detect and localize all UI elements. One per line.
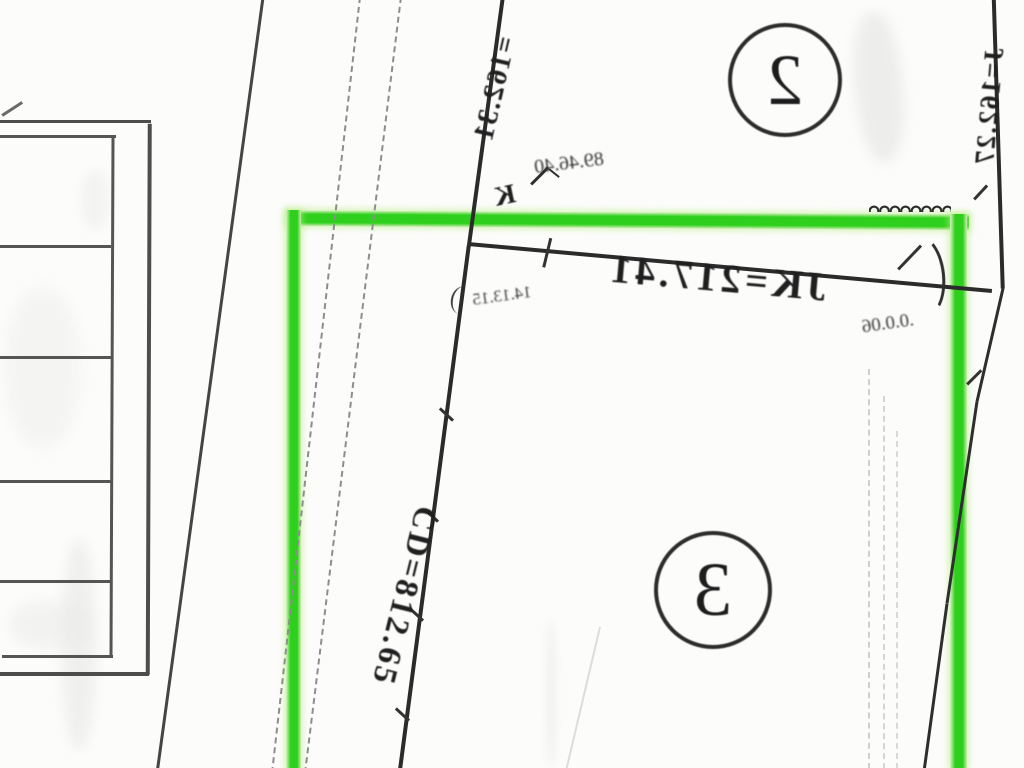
highlight-rect-left-edge bbox=[286, 210, 301, 768]
building-outline bbox=[146, 124, 151, 675]
scalloped-boundary-mark bbox=[869, 201, 951, 212]
building-partition bbox=[0, 480, 111, 483]
parcel-3-number: 3 bbox=[694, 547, 732, 634]
building-outline bbox=[0, 120, 151, 123]
faded-smudge bbox=[80, 170, 110, 230]
parcel-2-marker: 2 bbox=[728, 23, 842, 137]
building-partition bbox=[0, 580, 111, 583]
building-partition bbox=[0, 245, 111, 248]
faded-smudge bbox=[6, 288, 80, 448]
dimension-label-162: =162.31 bbox=[463, 8, 529, 171]
faded-smudge bbox=[546, 620, 556, 768]
plat-map: JK=217.41 =162.31 J=162.27 CD=812.65 89.… bbox=[0, 0, 1024, 768]
building-outline bbox=[0, 672, 149, 676]
highlight-rect-top-edge bbox=[286, 210, 969, 230]
dimension-label-jk: JK=217.41 bbox=[566, 243, 869, 313]
dimension-label-j: J=162.27 bbox=[969, 31, 1012, 183]
building-outline bbox=[0, 135, 116, 138]
faded-line bbox=[896, 431, 898, 768]
dimension-label-cd: CD=812.65 bbox=[354, 461, 455, 732]
faded-line bbox=[883, 396, 885, 768]
point-label-k: K bbox=[485, 178, 524, 214]
station-tick bbox=[973, 184, 988, 200]
angle-label: .0.0.06 bbox=[832, 306, 944, 342]
road-edge-line bbox=[271, 0, 361, 768]
building-corner-tick bbox=[1, 101, 22, 116]
parcel-2-number: 2 bbox=[767, 39, 803, 122]
faded-smudge bbox=[10, 600, 90, 650]
boundary-line-right bbox=[976, 288, 1005, 402]
building-partition bbox=[0, 356, 111, 359]
faded-line bbox=[868, 369, 870, 768]
angle-arc bbox=[899, 234, 949, 318]
faded-line bbox=[565, 627, 601, 768]
parcel-3-marker: 3 bbox=[654, 531, 772, 649]
faded-smudge bbox=[849, 10, 910, 164]
survey-line-left bbox=[156, 0, 265, 768]
building-outline bbox=[2, 655, 113, 658]
boundary-line-right bbox=[923, 603, 949, 768]
angle-label: 89.46.40 bbox=[493, 143, 645, 183]
